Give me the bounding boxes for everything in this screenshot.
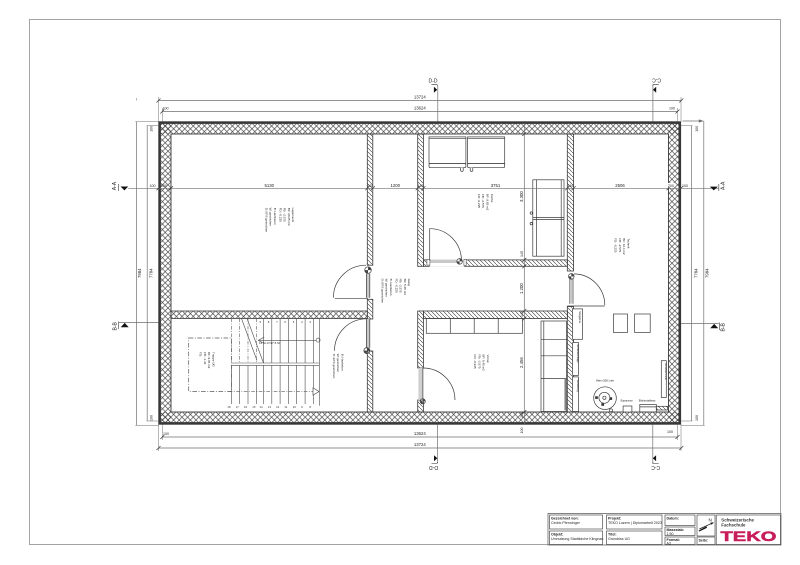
svg-text:FD: -0.225: FD: -0.225 <box>473 355 477 370</box>
svg-text:100: 100 <box>163 107 169 111</box>
svg-text:Wam 500 Liter: Wam 500 Liter <box>596 379 614 383</box>
svg-text:145: 145 <box>520 311 524 317</box>
svg-text:100: 100 <box>163 432 169 436</box>
svg-text:145: 145 <box>367 184 373 188</box>
svg-text:7784: 7784 <box>693 268 698 278</box>
svg-text:FD: -0.225: FD: -0.225 <box>614 238 618 253</box>
svg-text:7784: 7784 <box>148 268 153 278</box>
svg-text:Elektrotableau: Elektrotableau <box>639 399 656 403</box>
svg-text:Seite:: Seite: <box>699 539 709 543</box>
svg-text:5130: 5130 <box>265 183 275 188</box>
svg-text:TEKO Luzern | Diplomarbeit 202: TEKO Luzern | Diplomarbeit 2023 <box>608 521 662 525</box>
svg-text:3.300: 3.300 <box>519 191 524 202</box>
svg-text:13724: 13724 <box>414 442 427 447</box>
svg-text:15: 15 <box>252 405 256 409</box>
svg-text:2.456: 2.456 <box>519 357 524 368</box>
svg-text:FD: -0.225: FD: -0.225 <box>477 194 481 209</box>
svg-text:Grundriss UG: Grundriss UG <box>608 537 630 541</box>
svg-text:18: 18 <box>227 405 231 409</box>
svg-text:D: EPS gestrichen: D: EPS gestrichen <box>264 208 268 233</box>
svg-text:D: EPS gestrichen: D: EPS gestrichen <box>380 279 384 304</box>
svg-text:100: 100 <box>695 415 699 421</box>
svg-text:11: 11 <box>284 405 287 409</box>
svg-text:C-C: C-C <box>652 77 661 83</box>
svg-text:10: 10 <box>293 405 297 409</box>
svg-text:C-C: C-C <box>651 464 660 470</box>
svg-text:13624: 13624 <box>414 105 427 110</box>
svg-text:1200: 1200 <box>391 183 401 188</box>
svg-text:100: 100 <box>149 126 153 132</box>
svg-text:200: 200 <box>668 184 674 188</box>
svg-text:100: 100 <box>520 428 524 434</box>
svg-text:Projekt:: Projekt: <box>608 517 621 521</box>
svg-text:Cédric Pfenninger: Cédric Pfenninger <box>551 521 581 525</box>
svg-text:13: 13 <box>268 405 272 409</box>
svg-text:A3: A3 <box>667 542 671 546</box>
svg-text:100: 100 <box>682 184 688 188</box>
svg-text:Steigzone: Steigzone <box>578 311 582 323</box>
svg-text:FD: -0.225: FD: -0.225 <box>394 279 398 294</box>
svg-text:D-D: D-D <box>429 464 438 470</box>
svg-text:FD: -0.225: FD: -0.225 <box>278 208 282 223</box>
svg-text:A-A: A-A <box>112 181 118 190</box>
svg-text:100: 100 <box>150 184 156 188</box>
svg-text:14: 14 <box>260 405 264 409</box>
svg-text:Gezeichnet von:: Gezeichnet von: <box>551 517 579 521</box>
svg-text:3751: 3751 <box>491 183 501 188</box>
svg-text:100: 100 <box>149 415 153 421</box>
svg-text:200: 200 <box>161 184 167 188</box>
svg-text:D: EPS gestrichen: D: EPS gestrichen <box>332 354 336 379</box>
svg-text:13624: 13624 <box>414 431 427 436</box>
svg-text:7984: 7984 <box>137 268 142 278</box>
svg-text:100: 100 <box>667 430 673 434</box>
svg-text:12: 12 <box>276 405 280 409</box>
svg-text:TEKO: TEKO <box>721 529 777 544</box>
svg-text:7984: 7984 <box>704 268 709 278</box>
svg-text:1:50: 1:50 <box>667 532 674 536</box>
svg-text:2506: 2506 <box>615 183 625 188</box>
svg-text:FD:: FD: <box>199 352 203 357</box>
svg-text:13724: 13724 <box>414 94 427 99</box>
svg-text:Datum:: Datum: <box>667 517 679 521</box>
svg-text:145: 145 <box>568 184 574 188</box>
svg-text:17: 17 <box>236 405 240 409</box>
svg-text:145: 145 <box>520 251 524 257</box>
svg-text:Schliessanlage: Schliessanlage <box>576 344 580 363</box>
svg-text:16: 16 <box>244 405 248 409</box>
svg-text:Fachschule: Fachschule <box>721 522 746 527</box>
svg-text:Expansion: Expansion <box>621 399 634 403</box>
svg-text:200: 200 <box>520 412 524 418</box>
svg-text:100: 100 <box>695 126 699 132</box>
svg-text:1.200: 1.200 <box>519 283 524 294</box>
svg-text:Objekt:: Objekt: <box>551 533 563 537</box>
svg-text:N: N <box>709 518 712 523</box>
svg-text:Titel:: Titel: <box>608 533 617 537</box>
svg-text:B-B: B-B <box>113 322 119 331</box>
svg-text:Umnutzung Stadtkirche Klingnau: Umnutzung Stadtkirche Klingnau <box>551 537 603 541</box>
svg-text:Schaltschrank: Schaltschrank <box>664 363 668 381</box>
svg-text:145: 145 <box>418 184 424 188</box>
svg-text:A-A: A-A <box>721 181 727 190</box>
svg-text:Verteilung: Verteilung <box>576 380 580 392</box>
svg-text:100: 100 <box>669 107 675 111</box>
svg-text:16 St 17/27.5 St: 16 St 17/27.5 St <box>259 341 280 345</box>
svg-text:D-D: D-D <box>429 78 438 84</box>
svg-text:B-B: B-B <box>721 323 727 332</box>
